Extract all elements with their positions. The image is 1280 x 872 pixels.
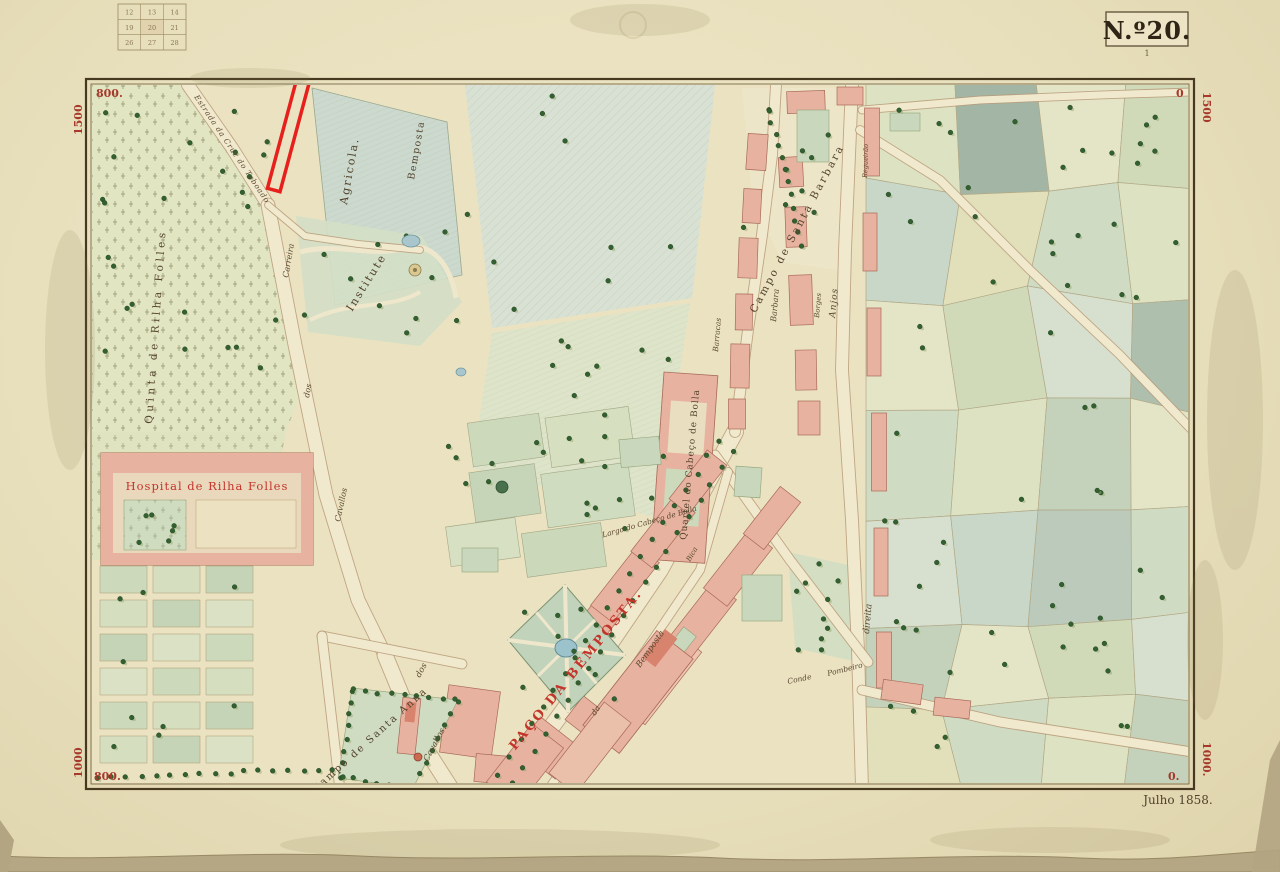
coord-bottom-right-v: 1000. (1200, 742, 1213, 776)
coord-bottom-left-v: 1000 (72, 747, 85, 778)
tree-icon (510, 781, 515, 786)
tree-icon (149, 513, 154, 518)
garden-plot (153, 668, 200, 695)
tree-icon (585, 512, 590, 517)
tree-icon (914, 628, 919, 633)
map-content: Quinta de Rilha Folles Hospital de Rilha… (90, 74, 1194, 806)
tree-icon (140, 774, 145, 779)
coord-top-left-v: 1500 (72, 104, 85, 135)
tree-icon (182, 310, 187, 315)
tree-icon (240, 190, 245, 195)
tree-icon (1019, 497, 1024, 502)
coord-bottom-right-h: 0. (1168, 770, 1179, 783)
tree-icon (566, 344, 571, 349)
tree-icon (490, 461, 495, 466)
coord-top-right-v: 1500 (1200, 92, 1213, 123)
tree-shadow (377, 784, 380, 787)
building-block (730, 344, 750, 388)
tree-icon (794, 589, 799, 594)
tree-icon (130, 302, 135, 307)
tree-icon (520, 685, 525, 690)
garden-plot (100, 634, 147, 661)
tree-icon (821, 617, 826, 622)
torn-corner-right (1252, 740, 1280, 872)
garden-plot (206, 668, 253, 695)
building-block (872, 413, 887, 491)
tree-icon (229, 772, 234, 777)
index-cell-2-0: 26 (125, 39, 133, 47)
tree-icon (285, 768, 290, 773)
tree-icon (187, 140, 192, 145)
tree-icon (661, 454, 666, 459)
tree-icon (1135, 161, 1140, 166)
tree-icon (888, 704, 893, 709)
tree-icon (341, 749, 346, 754)
tree-icon (456, 699, 461, 704)
tree-icon (346, 711, 351, 716)
tree-icon (417, 771, 422, 776)
tree-icon (941, 540, 946, 545)
building-block (440, 685, 501, 760)
tree-icon (894, 619, 899, 624)
label-regueirao: Regueirão (861, 144, 870, 179)
tree-icon (1106, 669, 1111, 674)
garden-plot (100, 736, 147, 763)
tree-icon (650, 537, 655, 542)
tree-icon (786, 179, 791, 184)
map-sheet-svg: Quinta de Rilha Folles Hospital de Rilha… (0, 0, 1280, 872)
tree-icon (717, 439, 722, 444)
building-block (729, 399, 746, 429)
tree-icon (125, 306, 130, 311)
garden-plot (153, 634, 200, 661)
tree-icon (882, 518, 887, 523)
tree-icon (375, 691, 380, 696)
tree-icon (989, 630, 994, 635)
tree-icon (213, 771, 218, 776)
tree-icon (789, 192, 794, 197)
tree-icon (1173, 240, 1178, 245)
tree-icon (349, 701, 354, 706)
tree-icon (567, 436, 572, 441)
tree-icon (255, 768, 260, 773)
field-patch (951, 398, 1047, 516)
tree-icon (346, 723, 351, 728)
tree-icon (265, 139, 270, 144)
garden-plot (100, 566, 147, 593)
building-block (795, 350, 817, 390)
courtyard-garden (619, 436, 661, 467)
tree-icon (541, 450, 546, 455)
tree-icon (1138, 141, 1143, 146)
tree-icon (183, 772, 188, 777)
tree-icon (966, 185, 971, 190)
tree-icon (741, 225, 746, 230)
tree-icon (550, 94, 555, 99)
tree-icon (232, 109, 237, 114)
building-block (738, 238, 758, 279)
tree-icon (627, 571, 632, 576)
tree-icon (809, 155, 814, 160)
garden-plot (153, 736, 200, 763)
tree-icon (144, 513, 149, 518)
tree-icon (1119, 723, 1124, 728)
tree-icon (707, 482, 712, 487)
tree-icon (803, 581, 808, 586)
tree-icon (1095, 488, 1100, 493)
tree-icon (522, 610, 527, 615)
tree-icon (172, 523, 177, 528)
tree-icon (774, 132, 779, 137)
tree-icon (800, 148, 805, 153)
garden-plot (206, 566, 253, 593)
tree-icon (118, 596, 123, 601)
tree-icon (894, 431, 899, 436)
tree-icon (129, 715, 134, 720)
tree-icon (197, 771, 202, 776)
tree-icon (617, 497, 622, 502)
tree-icon (605, 605, 610, 610)
tree-icon (348, 276, 353, 281)
tree-icon (363, 689, 368, 694)
tree-icon (555, 613, 560, 618)
tree-icon (897, 108, 902, 113)
tree-icon (448, 711, 453, 716)
tree-icon (663, 549, 668, 554)
tree-icon (141, 590, 146, 595)
tree-icon (137, 540, 142, 545)
tree-icon (649, 496, 654, 501)
tree-icon (220, 169, 225, 174)
tree-icon (491, 260, 496, 265)
tree-icon (226, 345, 231, 350)
sheet-number-box: N.º20. 1 (1103, 12, 1192, 58)
tree-icon (351, 686, 356, 691)
tree-icon (512, 307, 517, 312)
courtyard-garden (890, 113, 920, 131)
garden-plot (206, 736, 253, 763)
tree-icon (638, 554, 643, 559)
tree-icon (559, 339, 564, 344)
tree-icon (103, 349, 108, 354)
tree-icon (111, 744, 116, 749)
tree-icon (454, 318, 459, 323)
tree-icon (800, 188, 805, 193)
tree-icon (594, 364, 599, 369)
tree-icon (612, 697, 617, 702)
tree-icon (302, 313, 307, 318)
tree-icon (585, 372, 590, 377)
garden-plot (206, 702, 253, 729)
tree-icon (791, 206, 796, 211)
tree-icon (826, 133, 831, 138)
tree-icon (232, 585, 237, 590)
building-block (933, 697, 971, 719)
sheet-number-note: 1 (1144, 49, 1149, 58)
tree-icon (579, 458, 584, 463)
tree-icon (441, 697, 446, 702)
tree-icon (103, 110, 108, 115)
index-cell-0-0: 12 (125, 9, 133, 17)
tree-icon (920, 345, 925, 350)
tree-icon (302, 769, 307, 774)
tree-icon (780, 155, 785, 160)
garden-plot (100, 600, 147, 627)
tree-icon (507, 755, 512, 760)
field-patch (1131, 506, 1194, 619)
field-patch (1038, 398, 1131, 510)
tree-icon (1061, 645, 1066, 650)
tree-icon (520, 765, 525, 770)
coord-top-right-h: 0 (1176, 87, 1184, 100)
tree-icon (106, 255, 111, 260)
tree-icon (776, 143, 781, 148)
tree-icon (654, 565, 659, 570)
tree-icon (111, 264, 116, 269)
courtyard-garden (462, 548, 498, 572)
tree-icon (1152, 149, 1157, 154)
tree-icon (937, 121, 942, 126)
sheet-number: N.º20. (1103, 16, 1192, 45)
garden-plot (469, 464, 541, 523)
tree-icon (241, 768, 246, 773)
tree-icon (429, 275, 434, 280)
tree-icon (643, 580, 648, 585)
garden-plot (100, 668, 147, 695)
tree-icon (1069, 622, 1074, 627)
tree-icon (1109, 151, 1114, 156)
tree-icon (1125, 724, 1130, 729)
tree-icon (799, 244, 804, 249)
tree-icon (943, 735, 948, 740)
field-patch (1132, 612, 1194, 702)
tree-icon (819, 636, 824, 641)
tree-icon (245, 204, 250, 209)
tree-icon (1144, 123, 1149, 128)
tree-icon (1050, 251, 1055, 256)
building-block (867, 308, 881, 376)
tree-icon (162, 196, 167, 201)
tree-icon (1013, 119, 1018, 124)
tree-icon (1068, 105, 1073, 110)
tree-icon (1160, 595, 1165, 600)
tree-icon (1091, 404, 1096, 409)
tree-icon (465, 212, 470, 217)
tree-icon (893, 520, 898, 525)
tree-icon (123, 775, 128, 780)
tree-icon (270, 768, 275, 773)
tree-icon (413, 316, 418, 321)
tree-icon (341, 775, 346, 780)
tree-icon (375, 242, 380, 247)
sheet-index-grid: 12 13 14 19 20 21 26 27 28 (118, 4, 186, 50)
tree-icon (563, 139, 568, 144)
garden-plot (100, 702, 147, 729)
tree-icon (948, 670, 953, 675)
tree-icon (389, 691, 394, 696)
garden-plot (153, 702, 200, 729)
label-hospital: Hospital de Rilha Folles (126, 479, 289, 493)
tree-icon (387, 783, 392, 788)
tree-icon (825, 597, 830, 602)
tree-icon (579, 607, 584, 612)
tree-icon (463, 481, 468, 486)
tree-icon (886, 192, 891, 197)
index-cell-1-2: 21 (171, 24, 179, 32)
tree-icon (606, 278, 611, 283)
tree-icon (668, 244, 673, 249)
tree-icon (609, 245, 614, 250)
tree-icon (156, 733, 161, 738)
index-cell-0-2: 14 (171, 9, 179, 17)
building-block (742, 189, 762, 224)
tree-icon (572, 649, 577, 654)
field-patch (951, 510, 1038, 627)
tree-icon (261, 153, 266, 158)
tree-icon (345, 737, 350, 742)
tree-icon (917, 584, 922, 589)
tree-icon (572, 393, 577, 398)
tree-icon (232, 703, 237, 708)
tree-icon (640, 348, 645, 353)
tree-icon (593, 672, 598, 677)
tree-icon (1061, 165, 1066, 170)
tree-icon (704, 453, 709, 458)
tree-icon (1120, 292, 1125, 297)
tree-icon (901, 625, 906, 630)
building-block (789, 275, 814, 326)
field-patch (1130, 398, 1194, 510)
building-block (874, 528, 888, 596)
tree-icon (166, 539, 171, 544)
tree-icon (817, 561, 822, 566)
tree-icon (1138, 568, 1143, 573)
tree-icon (917, 324, 922, 329)
tree-icon (182, 347, 187, 352)
tree-icon (594, 623, 599, 628)
sheet-date: Julho 1858. (1141, 793, 1213, 807)
tree-icon (819, 647, 824, 652)
tree-icon (1050, 603, 1055, 608)
coord-top-left-h: 800. (96, 87, 123, 100)
tree-icon (602, 434, 607, 439)
tree-icon (783, 167, 788, 172)
tree-icon (696, 472, 701, 477)
tree-icon (666, 357, 671, 362)
tree-icon (796, 647, 801, 652)
tree-icon (1059, 582, 1064, 587)
building-block (798, 401, 820, 435)
tree-icon (170, 528, 175, 533)
tree-icon (672, 503, 677, 508)
tree-icon (1080, 148, 1085, 153)
courtyard-garden (797, 110, 829, 162)
tree-icon (534, 440, 539, 445)
courtyard-garden (734, 466, 762, 498)
tree-icon (1134, 295, 1139, 300)
field-patch (1028, 510, 1132, 627)
tree-icon (316, 768, 321, 773)
tree-icon (1083, 405, 1088, 410)
tree-icon (533, 749, 538, 754)
tree-icon (1076, 233, 1081, 238)
index-cell-1-0: 19 (125, 24, 133, 32)
tree-icon (583, 638, 588, 643)
tree-icon (454, 455, 459, 460)
tree-icon (554, 714, 559, 719)
building-block (837, 87, 863, 105)
tree-icon (617, 588, 622, 593)
hospital-complex (101, 453, 313, 565)
tree-icon (991, 280, 996, 285)
tree-icon (495, 773, 500, 778)
tree-icon (155, 773, 160, 778)
tree-icon (767, 109, 772, 114)
coord-bottom-left-h: 800. (94, 770, 121, 783)
tree-icon (1049, 240, 1054, 245)
building-block (746, 133, 768, 170)
garden-plot (153, 600, 200, 627)
field-patchwork (866, 83, 1194, 788)
tree-icon (783, 202, 788, 207)
tree-icon (948, 130, 953, 135)
tree-icon (322, 252, 327, 257)
tree-icon (544, 732, 549, 737)
tree-icon (585, 501, 590, 506)
tree-icon (1098, 616, 1103, 621)
tree-icon (1153, 115, 1158, 120)
tree-icon (443, 230, 448, 235)
building-block (863, 213, 877, 271)
tree-icon (1102, 641, 1107, 646)
tree-icon (135, 113, 140, 118)
tree-icon (102, 201, 107, 206)
tree-icon (351, 775, 356, 780)
tree-icon (1048, 330, 1053, 335)
tree-icon (973, 214, 978, 219)
courtyard-garden (742, 575, 782, 621)
tree-icon (121, 659, 126, 664)
tree-icon (593, 506, 598, 511)
index-cell-1-1: 20 (148, 24, 156, 32)
tree-icon (602, 413, 607, 418)
tree-icon (1065, 283, 1070, 288)
garden-plot (206, 600, 253, 627)
tree-icon (720, 465, 725, 470)
tree-icon (825, 626, 830, 631)
garden-plot (153, 566, 200, 593)
tree-icon (550, 363, 555, 368)
tree-icon (363, 779, 368, 784)
tree-icon (1002, 662, 1007, 667)
tree-icon (1093, 647, 1098, 652)
tree-icon (768, 120, 773, 125)
index-cell-2-2: 28 (171, 39, 179, 47)
tree-icon (699, 498, 704, 503)
tree-icon (731, 449, 736, 454)
tree-icon (1112, 222, 1117, 227)
tree-icon (934, 560, 939, 565)
tree-icon (486, 479, 491, 484)
tree-icon (258, 365, 263, 370)
tree-icon (111, 154, 116, 159)
building-block (735, 294, 753, 330)
tree-icon (556, 634, 561, 639)
tree-icon (377, 303, 382, 308)
tree-icon (161, 724, 166, 729)
tree-icon (540, 111, 545, 116)
tree-icon (602, 464, 607, 469)
